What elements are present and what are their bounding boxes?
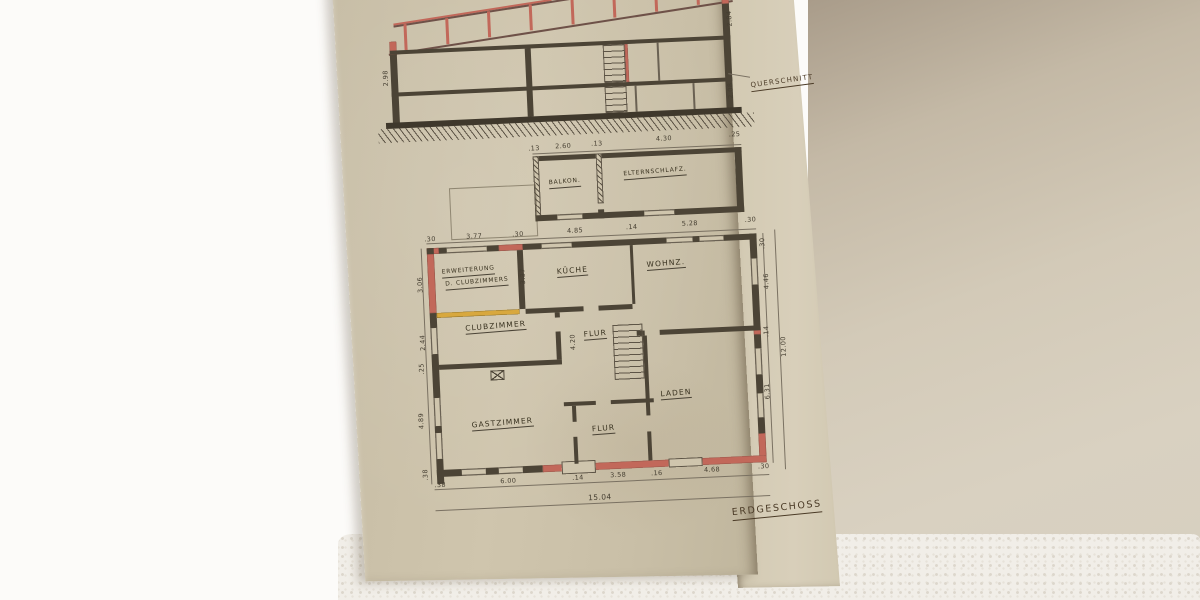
section-stair-lower — [605, 86, 628, 113]
dim: 6.00 — [500, 478, 516, 485]
room-label-balkon: BALKON. — [549, 178, 581, 189]
section-left-wall — [390, 54, 400, 126]
dim: .30 — [758, 463, 770, 470]
plan-title-erdgeschoss: ERDGESCHOSS — [731, 499, 822, 520]
roof-post — [696, 0, 700, 5]
dim: .14 — [626, 224, 638, 231]
dim: .30 — [759, 237, 766, 249]
window — [542, 242, 572, 249]
entrance-door — [561, 460, 596, 475]
room-label-wohnzimmer: WOHNZ. — [646, 258, 685, 271]
dim: 4.46 — [763, 273, 770, 289]
roof-post — [612, 0, 616, 18]
chimney-symbol — [490, 370, 504, 381]
room-label-flur-unten: FLUR — [592, 424, 616, 436]
roof-lower-chord — [389, 0, 733, 55]
dim: 6.31 — [764, 383, 771, 399]
dim-total-height: 12.00 — [780, 336, 787, 357]
kueche-wohnz-wall — [630, 245, 636, 304]
dim-flur-length: 4.20 — [569, 334, 576, 350]
flur-top-wall — [564, 401, 596, 406]
dim: .38 — [434, 482, 446, 489]
dim: 3.58 — [610, 472, 626, 479]
room-label-flur-mitte: FLUR — [583, 329, 607, 341]
window — [644, 209, 674, 216]
extension-roof-outline — [449, 184, 538, 240]
dim: 3.77 — [466, 233, 482, 240]
window — [557, 213, 582, 220]
dim: .30 — [745, 216, 757, 223]
roof-post — [654, 0, 658, 12]
section-dim: 2.08 — [727, 82, 734, 98]
dim: 4.30 — [656, 135, 672, 142]
window — [447, 246, 487, 254]
window — [699, 235, 723, 242]
dim: .13 — [528, 145, 540, 152]
section-title: QUERSCHNITT — [750, 74, 814, 92]
roof-post — [403, 24, 407, 50]
dim: 5.28 — [682, 220, 698, 227]
dim: .14 — [572, 474, 584, 481]
dim: .30 — [424, 236, 436, 243]
roof-post — [529, 4, 533, 30]
room-label-erweiterung-2: D. CLUBZIMMERS — [445, 277, 509, 291]
dim: 2.44 — [419, 335, 426, 351]
window — [430, 328, 438, 354]
roof-post — [487, 11, 491, 37]
upper-right-wall — [734, 147, 744, 212]
dim-total-width: 15.04 — [588, 493, 612, 502]
roof-post — [445, 18, 449, 44]
dim: .14 — [763, 325, 770, 337]
room-label-kueche: KÜCHE — [557, 266, 589, 278]
dim: 4.68 — [704, 466, 720, 473]
dim: .25 — [729, 131, 741, 138]
dim: 4.85 — [567, 227, 583, 234]
section-stair-wall-new — [625, 44, 630, 82]
room-label-erweiterung: ERWEITERUNG — [441, 265, 495, 278]
kueche-bottom-wall — [598, 304, 632, 311]
section-dim: 2.84 — [726, 10, 733, 26]
section-partition — [657, 43, 661, 81]
section-partition — [634, 86, 637, 112]
laden-left-wall — [643, 335, 651, 415]
gf-left-wall-new — [427, 254, 437, 313]
section-inner-wall — [525, 48, 534, 116]
dim: .38 — [422, 469, 429, 481]
roof-upper-chord — [393, 0, 725, 27]
photo-of-floor-plan: 2.84 2.08 2.98 QUERSCHNITT .13 2.60 .13 … — [0, 0, 1200, 600]
gast-right-wall — [573, 437, 578, 464]
window — [435, 433, 443, 459]
dim-kueche-depth: 3.37 — [519, 268, 526, 284]
dim: .30 — [512, 231, 524, 238]
dim: .16 — [651, 470, 663, 477]
demolition-wall-yellow — [437, 309, 520, 318]
room-label-elternschlafzimmer: ELTERNSCHLAFZ. — [623, 166, 687, 180]
dim: 2.60 — [555, 143, 571, 150]
dim: 3.06 — [417, 277, 424, 293]
dim: .25 — [418, 363, 425, 375]
dim: .13 — [591, 140, 603, 147]
wohnz-bottom-wall — [660, 325, 761, 335]
dim: 4.89 — [418, 413, 425, 429]
section-stair-upper — [603, 44, 627, 83]
window — [666, 236, 692, 243]
room-label-laden: LADEN — [660, 388, 692, 400]
plan-drawing: 2.84 2.08 2.98 QUERSCHNITT .13 2.60 .13 … — [372, 0, 850, 573]
room-label-gastzimmer: GASTZIMMER — [471, 417, 533, 432]
upper-floor-slab — [392, 77, 733, 96]
room-label-clubzimmer: CLUBZIMMER — [465, 320, 527, 335]
section-dim: 2.98 — [382, 70, 389, 86]
window — [499, 466, 523, 474]
dim-line — [435, 474, 770, 490]
window — [750, 258, 758, 284]
clubzimmer-gast-wall — [439, 359, 562, 370]
laden-left-wall — [647, 431, 652, 460]
section-partition — [692, 83, 695, 109]
gast-right-wall — [572, 406, 577, 422]
window — [755, 348, 763, 374]
gf-bottom-wall — [437, 465, 543, 477]
window — [462, 468, 486, 476]
clubzimmer-right-wall — [555, 312, 560, 317]
roof-post — [570, 0, 574, 25]
table-surface-right — [808, 0, 1200, 600]
staircase — [612, 324, 644, 380]
shop-window — [668, 457, 702, 468]
balkon-parapet-right — [596, 153, 604, 203]
clubzimmer-right-wall — [556, 331, 562, 359]
window — [433, 398, 441, 426]
